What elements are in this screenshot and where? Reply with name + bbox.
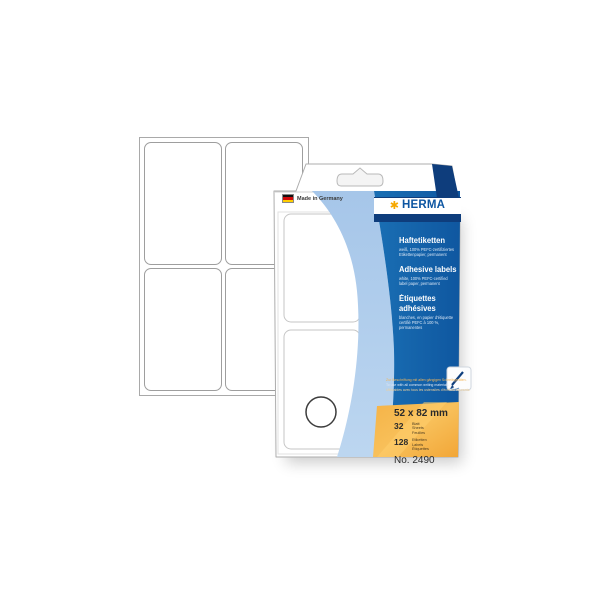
label-count-row: 128 Etiketten Labels Étiquettes <box>394 438 464 451</box>
label-size: 52 x 82 mm <box>394 408 464 419</box>
label-count-units: Etiketten Labels Étiquettes <box>412 438 429 451</box>
description-en-subtitle: white, 100% PEFC-certified label paper, … <box>399 276 462 286</box>
sheet-count: 32 <box>394 422 412 431</box>
made-in-germany: Made in Germany <box>282 194 343 203</box>
package-artwork <box>0 0 600 600</box>
punch-hole-circle <box>306 397 336 427</box>
made-in-label: Made in Germany <box>297 196 343 202</box>
spec-panel: 52 x 82 mm 32 Blatt Sheets Feuilles 128 … <box>394 408 464 466</box>
german-flag-icon <box>282 194 294 203</box>
label-count: 128 <box>394 438 412 447</box>
herma-asterisk-icon: ✱ <box>390 201 399 212</box>
usage-note-fr: Utilisables avec tous les ustensiles d'é… <box>386 388 456 393</box>
brand-band: ✱ HERMA <box>374 198 461 214</box>
description-fr-subtitle: blanches, en papier d'étiquette certifié… <box>399 315 462 330</box>
sheet-count-units: Blatt Sheets Feuilles <box>412 422 425 435</box>
description-de-subtitle: weiß, 100% PEFC-zertifiziertes Etiketten… <box>399 247 462 257</box>
description-de-title: Haftetiketten <box>399 236 462 246</box>
description-fr-title: Étiquettes adhésives <box>399 294 462 313</box>
item-number: No. 2490 <box>394 455 464 466</box>
brand-name: HERMA <box>402 200 445 212</box>
product-photo: Made in Germany ✱ HERMA Haftetiketten we… <box>0 0 600 600</box>
description-fr: Étiquettes adhésives blanches, en papier… <box>399 294 465 330</box>
description-de: Haftetiketten weiß, 100% PEFC-zertifizie… <box>399 236 465 257</box>
description-en-title: Adhesive labels <box>399 265 462 275</box>
usage-note: Zur Beschriftung mit allen gängigen Schr… <box>386 378 462 393</box>
sheet-count-row: 32 Blatt Sheets Feuilles <box>394 422 464 435</box>
description-en: Adhesive labels white, 100% PEFC-certifi… <box>399 265 465 286</box>
